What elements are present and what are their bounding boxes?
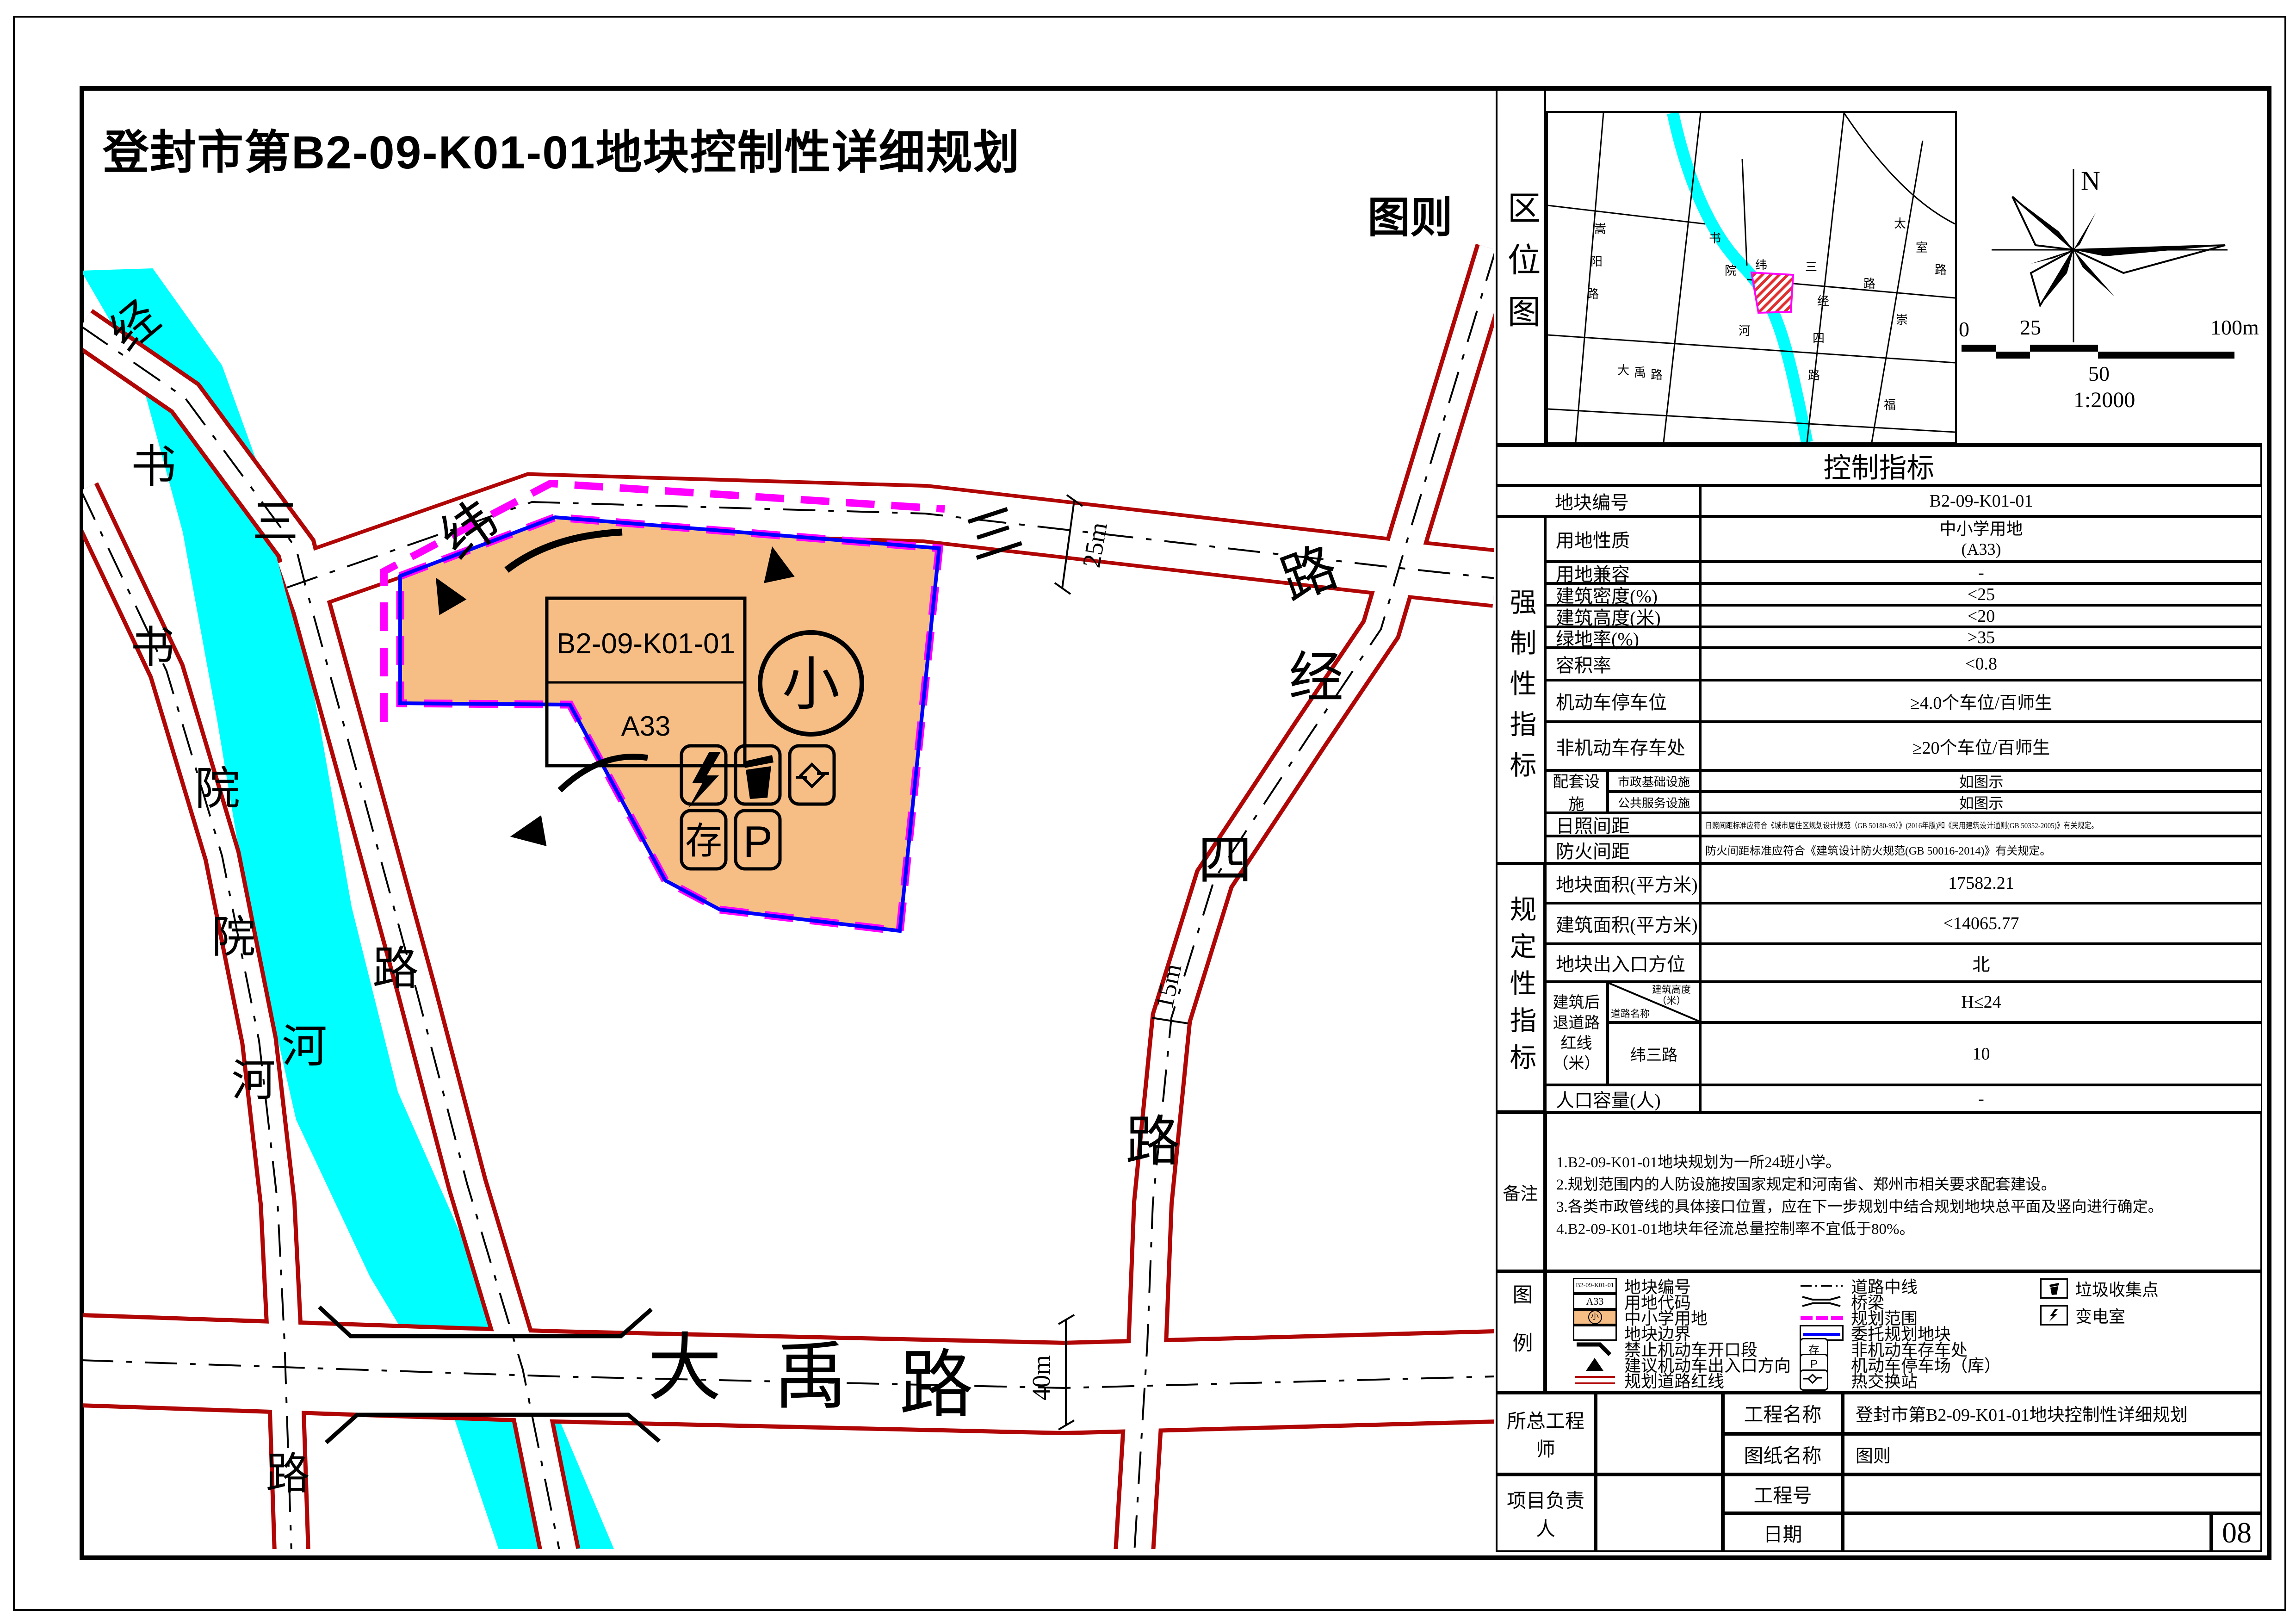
setback-value: 10 [1700, 1022, 2262, 1085]
svg-text:路: 路 [372, 943, 419, 995]
row-density-value-text: <25 [1968, 584, 1995, 605]
row-bike-value: ≥20个车位/百师生 [1700, 722, 2262, 770]
setback-colvalue: H≤24 [1700, 982, 2262, 1022]
row-peitao-v1: 如图示 [1700, 770, 2262, 792]
legend-text: 规划道路红线 [1624, 1368, 1724, 1392]
row-entrance-label-text: 地块出入口方位 [1556, 949, 1685, 976]
diag-top-text: 建筑高度（米） [1646, 984, 1697, 1006]
date-value [1843, 1513, 2211, 1552]
chief-engineer-text: 所总工程师 [1498, 1406, 1594, 1462]
row-code-value: B2-09-K01-01 [1700, 486, 2262, 516]
trash-swatch [2040, 1278, 2068, 1299]
svg-text:50: 50 [2088, 362, 2110, 385]
svg-text:禹: 禹 [774, 1336, 848, 1418]
bike-storage-mark: 存 [685, 821, 722, 862]
row-setback-label-text: 建筑后退道路红线（米） [1550, 993, 1603, 1074]
control-table-header-text: 控制指标 [1824, 446, 1935, 486]
svg-text:书: 书 [131, 442, 176, 492]
row-density-label: 建筑密度(%) [1545, 583, 1700, 605]
svg-text:河: 河 [1739, 324, 1751, 338]
row-density-value: <25 [1700, 583, 2262, 605]
row-floorarea-value-text: <14065.77 [1943, 913, 2019, 934]
svg-text:40m: 40m [1027, 1355, 1055, 1400]
svg-text:路: 路 [1808, 369, 1820, 382]
page-number-box: 08 [2211, 1513, 2262, 1552]
parking-mark: P [743, 817, 773, 867]
scale-bar-labels: 0 25 100m 50 1:2000 [1959, 316, 2259, 412]
row-bike-label-text: 非机动车存车处 [1556, 733, 1685, 760]
legend-item: 热交换站 [1800, 1372, 2001, 1388]
row-green-value: >35 [1700, 627, 2262, 648]
swatch-text: A33 [1586, 1295, 1604, 1307]
remark-line-1: 1.B2-09-K01-01地块规划为一所24班小学。 [1556, 1152, 1841, 1174]
parcel-code: B2-09-K01-01 [557, 628, 735, 660]
date-label-text: 日期 [1763, 1519, 1802, 1547]
parcel-code-swatch: B2-09-K01-01 [1573, 1278, 1617, 1294]
remark-line-4: 4.B2-09-K01-01地块年径流总量控制率不宜低于80%。 [1556, 1218, 1915, 1240]
chief-engineer-signature [1596, 1393, 1723, 1474]
row-fire-value-text: 防火间距标准应符合《建筑设计防火规范(GB 50016-2014)》有关规定。 [1705, 842, 2051, 858]
legend-item: 规划道路红线 [1573, 1372, 1791, 1388]
drawing-name-label: 图纸名称 [1723, 1434, 1843, 1474]
row-fire-value: 防火间距标准应符合《建筑设计防火规范(GB 50016-2014)》有关规定。 [1700, 836, 2262, 863]
row-parking-value: ≥4.0个车位/百师生 [1700, 680, 2262, 722]
group-regulatory: 规定性指标 [1496, 863, 1545, 1112]
svg-text:路: 路 [1651, 368, 1663, 382]
row-population-value-text: - [1978, 1089, 1984, 1109]
row-peitao-sub1-text: 市政基础设施 [1618, 773, 1690, 790]
swatch-text: B2-09-K01-01 [1576, 1282, 1614, 1289]
row-fire-label: 防火间距 [1545, 836, 1700, 863]
heat-exchange-swatch [1800, 1372, 1844, 1388]
land-code-swatch: A33 [1573, 1294, 1617, 1309]
row-bike-value-text: ≥20个车位/百师生 [1912, 733, 2050, 759]
row-fire-label-text: 防火间距 [1556, 836, 1630, 863]
substation-swatch [2040, 1305, 2068, 1326]
row-population-label-text: 人口容量(人) [1556, 1085, 1661, 1112]
compass-north-letter: N [2081, 166, 2100, 196]
date-label: 日期 [1723, 1513, 1843, 1552]
setback-diagonal-cell: 建筑高度（米） 道路名称 [1608, 982, 1700, 1022]
mini-parcel [1751, 273, 1793, 313]
chief-engineer-label: 所总工程师 [1496, 1393, 1596, 1474]
project-leader-label: 项目负责人 [1496, 1474, 1596, 1552]
row-area-value: 17582.21 [1700, 863, 2262, 903]
row-peitao-sub1: 市政基础设施 [1608, 770, 1700, 792]
row-use-value: 中小学用地 (A33) [1700, 516, 2262, 562]
row-parking-label: 机动车停车位 [1545, 680, 1700, 722]
group-mandatory-text: 强制性指标 [1501, 588, 1540, 792]
svg-text:25: 25 [2020, 316, 2041, 339]
svg-text:河: 河 [231, 1056, 275, 1105]
row-parking-value-text: ≥4.0个车位/百师生 [1910, 688, 2052, 714]
scale-bar: 0 25 100m 50 1:2000 [1957, 303, 2262, 414]
location-map-label: 区位图 [1499, 167, 1543, 370]
remark-line-2: 2.规划范围内的人防设施按国家规定和河南省、郑州市相关要求配套建设。 [1556, 1174, 2056, 1196]
row-peitao-v2-text: 如图示 [1959, 792, 2003, 813]
svg-text:路: 路 [899, 1344, 973, 1426]
page-title: 登封市第B2-09-K01-01地块控制性详细规划 [103, 115, 1021, 182]
location-minimap: 嵩 阳 路 书 院 河 大 禹 路 太 室 路 纬 三 路 经 四 路 崇 福 [1546, 111, 1957, 444]
drawing-name-label-text: 图纸名称 [1744, 1440, 1821, 1468]
row-area-label-text: 地块面积(平方米) [1556, 870, 1698, 897]
row-code-value-text: B2-09-K01-01 [1930, 491, 2033, 511]
svg-text:纬: 纬 [1755, 259, 1767, 272]
diag-bottom-text: 道路名称 [1611, 1006, 1650, 1020]
row-setback-label: 建筑后退道路红线（米） [1545, 982, 1608, 1085]
legend-item: 变电室 [2040, 1307, 2159, 1323]
row-height-value-text: <20 [1968, 606, 1995, 626]
parcel-boundary-swatch [1573, 1325, 1617, 1341]
row-height-value: <20 [1700, 605, 2262, 627]
row-sunlight-label: 日照间距 [1545, 813, 1700, 836]
svg-text:太: 太 [1894, 217, 1906, 230]
row-entrance-value: 北 [1700, 944, 2262, 982]
project-name-label: 工程名称 [1723, 1393, 1843, 1434]
svg-text:100m: 100m [2210, 316, 2259, 339]
svg-text:崇: 崇 [1896, 313, 1908, 327]
control-table-header: 控制指标 [1496, 445, 2262, 486]
group-mandatory: 强制性指标 [1496, 516, 1545, 863]
svg-text:大: 大 [648, 1327, 722, 1410]
row-far-value: <0.8 [1700, 648, 2262, 680]
svg-text:路: 路 [1587, 287, 1599, 301]
row-floorarea-label-text: 建筑面积(平方米) [1556, 910, 1698, 937]
svg-text:三: 三 [252, 496, 298, 548]
svg-text:室: 室 [1916, 241, 1928, 254]
row-area-label: 地块面积(平方米) [1545, 863, 1700, 903]
svg-text:四: 四 [1198, 830, 1252, 891]
legend-item: 道路中线 [1800, 1278, 2001, 1294]
remarks-label: 备注 [1496, 1112, 1545, 1271]
row-far-label: 容积率 [1545, 648, 1700, 680]
row-peitao-sub2-text: 公共服务设施 [1618, 794, 1690, 811]
row-bike-label: 非机动车存车处 [1545, 722, 1700, 770]
row-green-value-text: >35 [1968, 627, 1995, 648]
setback-colvalue-text: H≤24 [1961, 992, 2001, 1012]
road-redline-swatch [1573, 1372, 1617, 1388]
svg-text:书: 书 [130, 623, 174, 672]
row-use-value-text: 中小学用地 [1939, 519, 2023, 539]
svg-text:路: 路 [1863, 277, 1875, 291]
row-floorarea-label: 建筑面积(平方米) [1545, 903, 1700, 944]
setback-value-text: 10 [1973, 1044, 1990, 1064]
project-name-label-text: 工程名称 [1744, 1399, 1821, 1427]
row-area-value-text: 17582.21 [1948, 873, 2014, 893]
svg-text:经: 经 [1817, 295, 1829, 308]
svg-text:嵩: 嵩 [1594, 223, 1606, 236]
row-floorarea-value: <14065.77 [1700, 903, 2262, 944]
svg-text:河: 河 [282, 1022, 327, 1072]
project-no-label: 工程号 [1723, 1474, 1843, 1513]
svg-text:福: 福 [1884, 398, 1896, 412]
remarks-content: 1.B2-09-K01-01地块规划为一所24班小学。 2.规划范围内的人防设施… [1545, 1112, 2262, 1271]
plan-sheet: B2-09-K01-01 A33 小 存 [0, 0, 2296, 1623]
school-mark: 小 [782, 653, 840, 717]
group-regulatory-text: 规定性指标 [1501, 895, 1540, 1080]
swatch-text: 小 [1588, 1310, 1602, 1324]
svg-text:院: 院 [1725, 264, 1737, 278]
project-no-value [1843, 1474, 2262, 1513]
row-population-value: - [1700, 1085, 2262, 1112]
setback-road-text: 纬三路 [1630, 1042, 1677, 1065]
setback-road: 纬三路 [1608, 1022, 1700, 1085]
remark-line-3: 3.各类市政管线的具体接口位置，应在下一步规划中结合规划地块总平面及竖向进行确定… [1556, 1196, 2163, 1218]
svg-text:路: 路 [1126, 1112, 1180, 1172]
legend-text: 垃圾收集点 [2075, 1276, 2159, 1301]
row-far-label-text: 容积率 [1556, 650, 1611, 677]
row-peitao-v2: 如图示 [1700, 792, 2262, 813]
svg-text:阳: 阳 [1590, 255, 1603, 268]
row-parking-label-text: 机动车停车位 [1556, 688, 1667, 714]
planning-scope-swatch [1800, 1309, 1844, 1325]
compass-arms [2012, 197, 2225, 305]
legend-text: 变电室 [2075, 1303, 2125, 1327]
legend-column-3: 垃圾收集点 变电室 [2040, 1281, 2159, 1323]
page-number-text: 08 [2222, 1516, 2252, 1550]
legend-text: 热交换站 [1851, 1368, 1918, 1392]
row-sunlight-label-text: 日照间距 [1556, 811, 1630, 838]
svg-text:路: 路 [266, 1450, 309, 1499]
centerline-swatch [1800, 1278, 1844, 1294]
svg-text:经: 经 [1289, 648, 1343, 708]
project-leader-signature [1596, 1474, 1723, 1552]
project-no-label-text: 工程号 [1753, 1480, 1812, 1508]
svg-text:大: 大 [1617, 364, 1629, 377]
row-peitao-label: 配套设施 [1545, 770, 1608, 813]
scale-bar-segments [1962, 345, 2234, 359]
entrance-arrow-swatch [1573, 1357, 1617, 1372]
row-entrance-value-text: 北 [1972, 950, 1990, 976]
svg-text:四: 四 [1813, 332, 1825, 345]
svg-text:院: 院 [195, 764, 240, 814]
legend-label: 图例 [1496, 1271, 1545, 1393]
legend-item: 垃圾收集点 [2040, 1281, 2159, 1296]
row-green-label: 绿地率(%) [1545, 627, 1700, 648]
row-use-label: 用地性质 [1545, 516, 1700, 562]
remarks-label-text: 备注 [1503, 1179, 1538, 1205]
row-peitao-label-text: 配套设施 [1547, 769, 1606, 814]
row-compat-value: - [1700, 562, 2262, 583]
row-compat-value-text: - [1978, 563, 1984, 583]
svg-text:禹: 禹 [1634, 366, 1646, 379]
row-sunlight-value-text: 日照间距标准应符合《城市居住区规划设计规范（GB 50180-93）》(2016… [1705, 819, 2098, 830]
project-name-value: 登封市第B2-09-K01-01地块控制性详细规划 [1843, 1393, 2262, 1434]
project-name-value-text: 登封市第B2-09-K01-01地块控制性详细规划 [1856, 1400, 2188, 1426]
row-green-label-text: 绿地率(%) [1556, 624, 1639, 651]
row-peitao-v1-text: 如图示 [1959, 770, 2003, 792]
legend-label-text: 图例 [1506, 1284, 1535, 1380]
row-sunlight-value: 日照间距标准应符合《城市居住区规划设计规范（GB 50180-93）》(2016… [1700, 813, 2262, 836]
swatch-text: P [1810, 1358, 1818, 1371]
row-use-value2-text: (A33) [1962, 539, 2001, 559]
svg-text:三: 三 [1805, 260, 1817, 274]
parcel-land-code: A33 [621, 711, 671, 742]
bridge-swatch [1800, 1294, 1844, 1309]
svg-text:院: 院 [211, 913, 255, 962]
school-land-swatch: 小 [1573, 1309, 1617, 1325]
row-code-label: 地块编号 [1496, 486, 1700, 516]
row-compat-label: 用地兼容 [1545, 562, 1700, 583]
drawing-name-value-text: 图则 [1856, 1442, 1891, 1467]
svg-text:路: 路 [1935, 263, 1947, 277]
legend-column-2: 道路中线 桥梁 规划范围 委托规划地块 存非机动车存车处 P机动车停车场（库） … [1800, 1278, 2001, 1388]
legend-column-1: B2-09-K01-01地块编号 A33用地代码 小中小学用地 地块边界 禁止机… [1573, 1278, 1791, 1388]
row-far-value-text: <0.8 [1965, 654, 1997, 674]
row-population-label: 人口容量(人) [1545, 1085, 1700, 1112]
drawing-name-value: 图则 [1843, 1434, 2262, 1474]
sheet-type-label: 图则 [1295, 183, 1453, 245]
svg-text:1:2000: 1:2000 [2073, 388, 2135, 412]
row-peitao-sub2: 公共服务设施 [1608, 792, 1700, 813]
svg-text:0: 0 [1959, 317, 1969, 341]
row-code-label-text: 地块编号 [1555, 488, 1629, 514]
no-opening-swatch [1573, 1341, 1617, 1357]
row-use-label-text: 用地性质 [1556, 526, 1630, 552]
project-leader-text: 项目负责人 [1498, 1485, 1594, 1542]
svg-text:书: 书 [1709, 232, 1721, 245]
row-entrance-label: 地块出入口方位 [1545, 944, 1700, 982]
